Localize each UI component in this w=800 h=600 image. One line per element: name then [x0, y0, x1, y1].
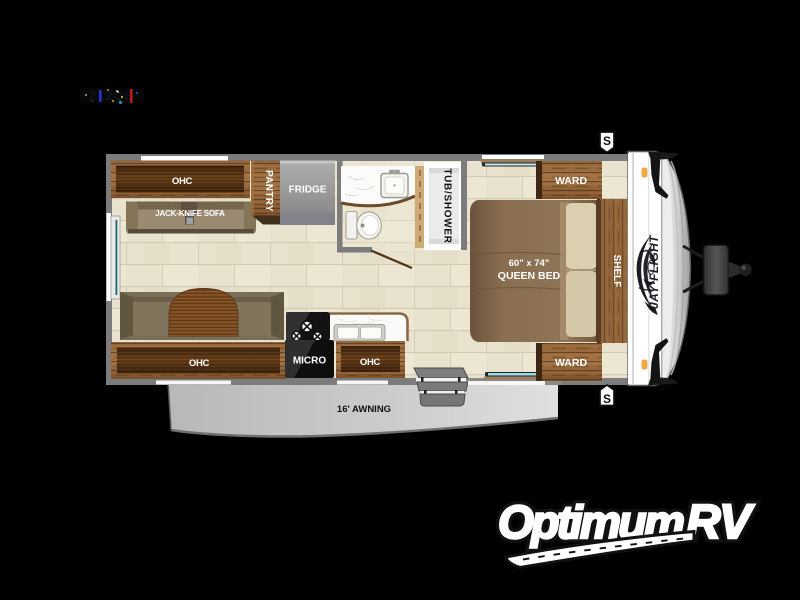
svg-text:60" x 74": 60" x 74" [509, 258, 550, 269]
svg-text:WARD: WARD [555, 175, 587, 187]
svg-text:SHELF: SHELF [611, 255, 622, 288]
svg-text:FRIDGE: FRIDGE [289, 185, 327, 196]
svg-text:S: S [603, 392, 611, 406]
svg-text:S: S [603, 134, 611, 148]
svg-text:16' AWNING: 16' AWNING [337, 404, 391, 415]
svg-text:JAY·FLIGHT: JAY·FLIGHT [647, 234, 661, 309]
svg-text:MICRO: MICRO [293, 356, 327, 367]
svg-text:OHC: OHC [360, 357, 381, 368]
svg-text:QUEEN BED: QUEEN BED [498, 270, 561, 282]
svg-text:212QB: 212QB [89, 88, 135, 103]
svg-text:OHC: OHC [189, 358, 210, 369]
svg-text:PANTRY: PANTRY [263, 170, 274, 212]
svg-text:OHC: OHC [172, 176, 193, 187]
svg-text:JACK-KNIFE SOFA: JACK-KNIFE SOFA [155, 209, 225, 218]
svg-text:WARD: WARD [555, 357, 587, 369]
svg-text:RV: RV [686, 496, 755, 549]
svg-text:TUB/SHOWER: TUB/SHOWER [442, 168, 453, 243]
